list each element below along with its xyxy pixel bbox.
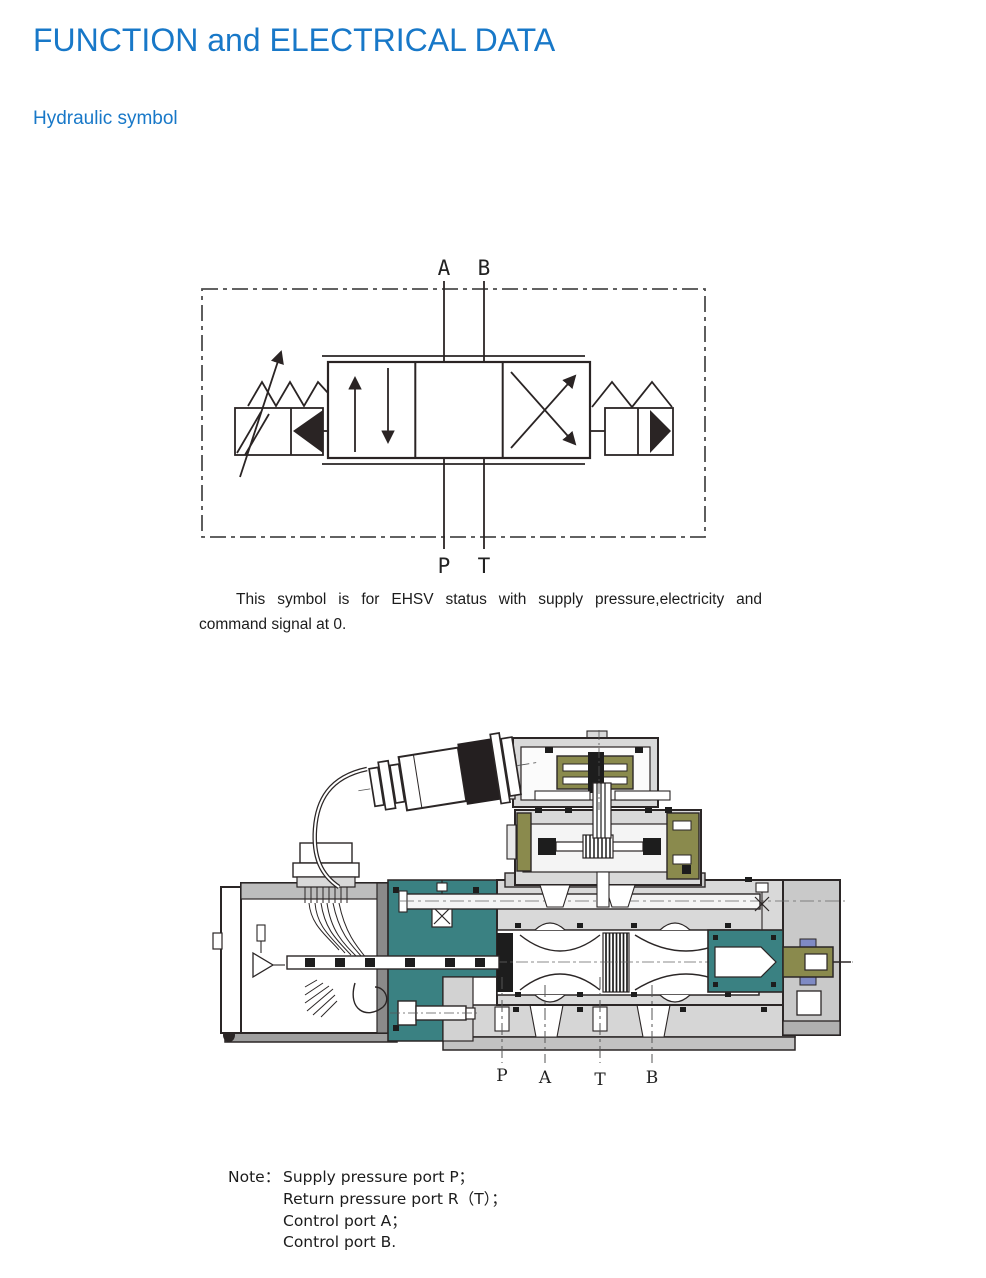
- valve-cross-section-svg: P A T B: [205, 725, 865, 1095]
- spring-right: [592, 382, 672, 407]
- datasheet-page: FUNCTION and ELECTRICAL DATA Hydraulic s…: [0, 0, 986, 1278]
- spring-left: [248, 382, 328, 406]
- note-block: Note： Supply pressure port P； Return pre…: [228, 1167, 507, 1254]
- hydraulic-symbol-svg: A B P T: [195, 250, 715, 580]
- note-lines: Supply pressure port P； Return pressure …: [283, 1167, 507, 1254]
- port-label-A: A: [538, 1068, 552, 1088]
- pilot-olive-left: [517, 813, 531, 871]
- note-line: Supply pressure port P；: [283, 1167, 507, 1189]
- solenoid-right: [590, 382, 673, 455]
- symbol-caption: This symbol is for EHSV status with supp…: [199, 588, 762, 637]
- port-label-B: B: [478, 256, 491, 280]
- port-label-P: P: [496, 1066, 507, 1086]
- note-label: Note：: [228, 1167, 283, 1254]
- hydraulic-symbol-diagram: A B P T: [195, 250, 715, 580]
- note-line: Control port A；: [283, 1211, 507, 1233]
- symbol-caption-line2: command signal at 0.: [199, 613, 762, 638]
- valve-body: [322, 356, 590, 464]
- valve-cross-section-drawing: P A T B: [205, 725, 865, 1095]
- teal-block-right: [708, 930, 783, 992]
- manifold-block: [443, 1005, 795, 1050]
- flapper-column: [593, 783, 611, 838]
- port-label-P: P: [438, 554, 451, 578]
- note-line: Control port B.: [283, 1232, 507, 1254]
- connector-plug: [353, 728, 542, 825]
- lvdt-feedback-rod: [287, 956, 499, 969]
- section-heading: Hydraulic symbol: [33, 108, 178, 130]
- port-label-A: A: [438, 256, 451, 280]
- cross-section-port-labels: P A T B: [496, 1066, 658, 1090]
- port-label-T: T: [594, 1070, 606, 1090]
- port-label-T: T: [478, 554, 491, 578]
- note-line: Return pressure port R（T）；: [283, 1189, 507, 1211]
- solenoid-left: [235, 352, 328, 477]
- page-title: FUNCTION and ELECTRICAL DATA: [33, 22, 555, 59]
- port-label-B: B: [646, 1068, 659, 1088]
- symbol-caption-line1: This symbol is for EHSV status with supp…: [199, 588, 762, 613]
